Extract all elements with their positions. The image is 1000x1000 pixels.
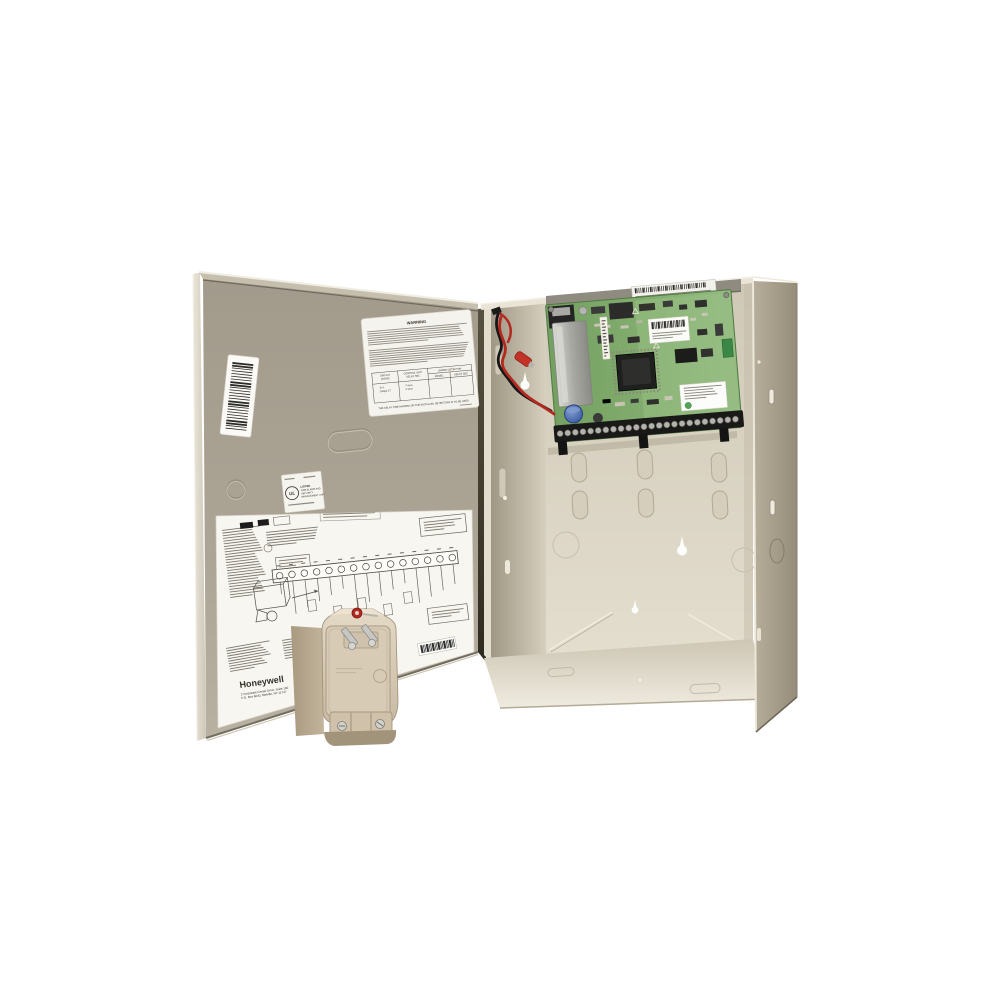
- screw-hole: [639, 679, 642, 682]
- crystal: [579, 306, 588, 315]
- right-wall-top-edge: [753, 277, 797, 282]
- knockout-slot: [770, 500, 775, 515]
- molded-text-line: [336, 672, 356, 673]
- alarm-panel-product-photo: WARNING CIRCUIT (ZONE) CONTROL UNIT DELA…: [0, 0, 1000, 1000]
- ul-listed-label: UL LISTED FIRE ALARM AND SECURITY MANAGE…: [281, 471, 327, 513]
- standoff-screw: [723, 292, 729, 298]
- standoff-tab: [638, 434, 648, 449]
- left-wall-flange: [484, 305, 491, 662]
- microprocessor-chip: [613, 349, 660, 394]
- molded-text-line: [336, 668, 362, 669]
- transformer-bottom-lip: [324, 730, 396, 746]
- ul-mark: UL: [289, 491, 296, 497]
- standoff-tab: [558, 441, 568, 456]
- red-screw-center: [355, 611, 359, 615]
- transformer-side: [291, 626, 324, 736]
- knockout-slot: [757, 628, 761, 641]
- standoff-tab: [719, 427, 729, 442]
- blade-screw: [348, 642, 355, 649]
- standoff-screw: [548, 307, 554, 313]
- knockout-slot: [499, 468, 506, 498]
- pcb-barcode-label: [648, 316, 690, 343]
- knockout-slot: [769, 389, 774, 404]
- screw-hole: [757, 360, 760, 363]
- product-photo-stage: WARNING CIRCUIT (ZONE) CONTROL UNIT DELA…: [0, 0, 1000, 1000]
- rj-jack-metal: [552, 307, 571, 316]
- knockout-slot: [505, 560, 510, 574]
- plug-in-transformer: [291, 608, 398, 746]
- panel-right-shade: [744, 281, 753, 642]
- warning-label: WARNING CIRCUIT (ZONE) CONTROL UNIT DELA…: [361, 309, 479, 416]
- screw-hole: [503, 496, 507, 500]
- pcb-spec-label: [680, 381, 728, 411]
- blade-screw: [368, 639, 375, 646]
